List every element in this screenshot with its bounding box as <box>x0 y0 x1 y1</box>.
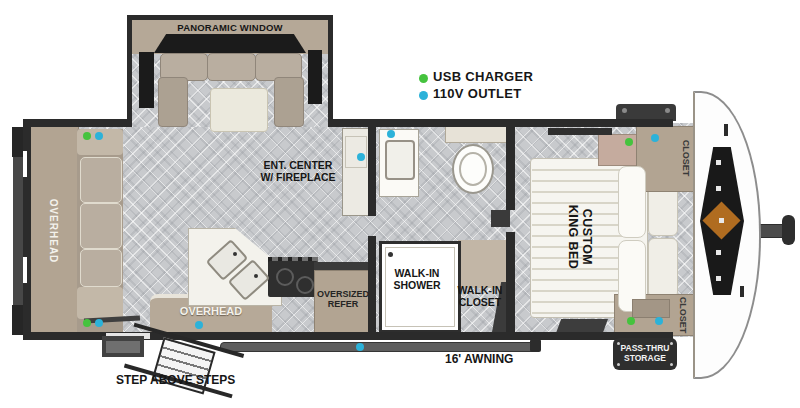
rear-wall-window <box>23 151 27 177</box>
slide-ottoman-table <box>210 88 268 132</box>
slide-side-window <box>139 52 154 108</box>
rear-sofa-cushion <box>80 157 122 203</box>
bath-wall-right-upper <box>506 124 515 210</box>
tv-bracket-knob <box>622 108 627 113</box>
panoramic-window <box>154 34 306 53</box>
pass-thru-label-line2: STORAGE <box>613 354 677 364</box>
110v-outlet-dot <box>651 134 659 142</box>
pass-thru-label: PASS-THRU STORAGE <box>613 344 677 363</box>
ent-center-label-line2: W/ FIREPLACE <box>238 172 358 184</box>
bed-label-line2: KING BED <box>566 205 580 269</box>
rear-overhead-label: OVERHEAD <box>48 199 59 264</box>
110v-outlet-dot <box>195 321 203 329</box>
rear-bumper <box>13 127 23 335</box>
sofa-slide-out: PANORAMIC WINDOW <box>127 15 333 127</box>
legend-usb-label: USB CHARGER <box>433 70 533 85</box>
brand-logo-dot <box>716 250 721 255</box>
brand-logo-dot <box>716 186 721 191</box>
faucet-icon <box>233 252 237 256</box>
bed-pillow <box>618 166 646 238</box>
stove-burner <box>276 268 294 286</box>
slide-sofa-seat-left <box>158 77 188 127</box>
wic-label-line1: WALK-IN <box>450 285 510 297</box>
usb-charger-dot <box>83 132 91 140</box>
ent-center-label-line1: ENT. CENTER <box>238 160 358 172</box>
brand-logo-dot <box>716 276 721 281</box>
walk-in-closet-label: WALK-IN CLOSET <box>450 285 510 309</box>
110v-outlet-dot <box>387 130 395 138</box>
brand-logo-dot <box>716 160 721 165</box>
toilet-seat <box>459 152 487 186</box>
walk-in-closet-carpet <box>458 240 506 288</box>
tv-bracket-knob <box>665 108 670 113</box>
110v-outlet-dot <box>356 343 364 351</box>
110v-outlet-dot <box>95 319 103 327</box>
rear-sofa-cushion <box>80 203 122 249</box>
shower-drain-icon <box>388 252 393 257</box>
slide-sofa-back-cushion <box>207 53 256 81</box>
top-wall <box>23 119 673 127</box>
awning-label: 16' AWNING <box>445 353 513 366</box>
badge-rivet <box>617 363 620 366</box>
pass-thru-storage-badge: PASS-THRU STORAGE <box>613 338 677 370</box>
front-closet-bottom-label: CLOSET <box>678 297 688 334</box>
awning-bar <box>220 342 538 352</box>
legend-usb-dot <box>419 74 428 83</box>
bath-wall-right-lower <box>506 232 515 336</box>
kitchen-overhead-label: OVERHEAD <box>158 305 264 317</box>
slide-sofa-seat-right <box>274 77 304 127</box>
usb-charger-dot <box>625 138 633 146</box>
badge-rivet <box>670 363 673 366</box>
steps-label: STEP ABOVE STEPS <box>116 374 235 387</box>
refer-label-line2: REFER <box>314 299 372 309</box>
ent-center-label: ENT. CENTER W/ FIREPLACE <box>238 160 358 184</box>
awning-end-cap <box>530 339 541 352</box>
legend-110v-label: 110V OUTLET <box>433 87 522 102</box>
stove-burner <box>296 276 314 294</box>
rear-sofa-armrest-bottom <box>77 287 123 319</box>
brand-logo-dot <box>719 218 724 223</box>
front-closet-top-label: CLOSET <box>681 140 691 177</box>
bath-wall-left-upper <box>368 124 376 216</box>
faucet-icon <box>254 274 258 278</box>
rear-sofa-cushion <box>80 249 122 287</box>
refrigerator-label: OVERSIZED REFER <box>314 289 372 309</box>
floorplan-canvas: OVERHEAD OVERHEAD OVERSIZED REFER ENT. C… <box>0 0 800 408</box>
king-bed-label: CUSTOM KING BED <box>566 205 595 269</box>
110v-outlet-dot <box>357 153 365 161</box>
hitch-jack <box>782 215 795 245</box>
vanity-sink <box>385 140 415 180</box>
cap-marker-light <box>740 286 744 297</box>
bath-shelf <box>491 210 510 227</box>
panoramic-window-label: PANORAMIC WINDOW <box>132 23 328 34</box>
bath-wall-left-lower <box>368 236 376 336</box>
refer-label-line1: OVERSIZED <box>314 289 372 299</box>
entry-step-platform-tread <box>106 341 140 353</box>
slide-side-window <box>308 50 322 104</box>
usb-charger-dot <box>83 319 91 327</box>
legend-110v-dot <box>419 91 428 100</box>
shower-label-line1: WALK-IN <box>382 268 452 280</box>
closet-drawer <box>632 299 670 318</box>
wic-label-line2: CLOSET <box>450 297 510 309</box>
bed-bench <box>648 238 678 298</box>
refer-backsplash <box>314 262 372 270</box>
rear-wall-window <box>23 257 27 283</box>
bedroom-window <box>548 128 612 135</box>
bedroom-floor-mat <box>556 319 608 333</box>
cap-marker-light <box>724 124 728 136</box>
toilet-shelf <box>445 126 509 143</box>
110v-outlet-dot <box>655 317 663 325</box>
110v-outlet-dot <box>95 132 103 140</box>
walk-in-shower-label: WALK-IN SHOWER <box>382 268 452 292</box>
shower-label-line2: SHOWER <box>382 280 452 292</box>
usb-charger-dot <box>627 317 635 325</box>
bed-label-line1: CUSTOM <box>580 205 594 269</box>
